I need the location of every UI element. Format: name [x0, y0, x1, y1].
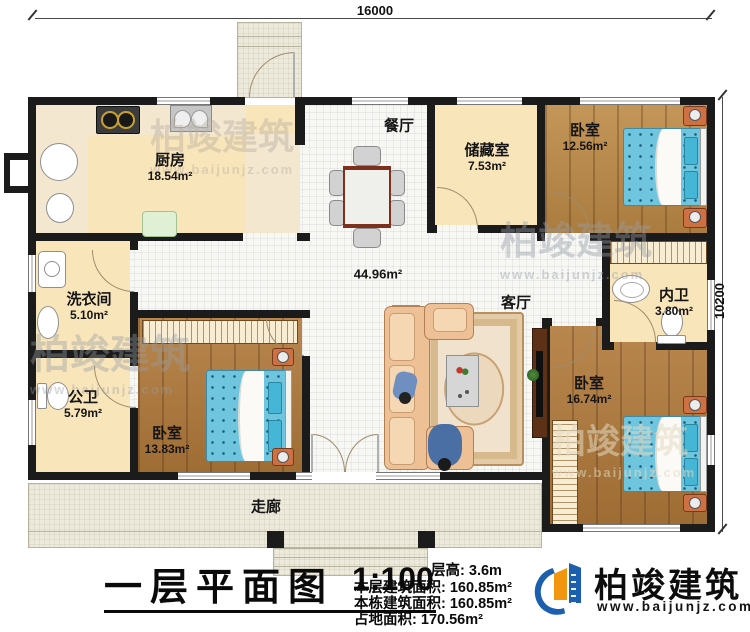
wall [297, 233, 310, 241]
armchair [424, 303, 474, 340]
nightstand [683, 494, 707, 512]
window [178, 472, 250, 480]
logo-icon [534, 559, 590, 619]
bed [623, 128, 707, 206]
wall [28, 350, 138, 358]
coffee-table [446, 355, 479, 407]
wardrobe [552, 420, 578, 528]
wall [130, 241, 138, 250]
wall [542, 472, 550, 532]
pillow [684, 171, 698, 199]
person-head [399, 392, 411, 404]
dining-chair [353, 146, 381, 166]
wall [707, 330, 715, 435]
plan-title: 一层平面图 [104, 556, 334, 611]
table-deco [465, 390, 469, 394]
table-deco [458, 394, 462, 398]
wall [210, 97, 245, 105]
nightstand [683, 208, 707, 228]
porch-step-line [238, 46, 301, 47]
sofa-cushion [389, 313, 415, 361]
wall [408, 97, 457, 105]
kitchen-counter-right [245, 134, 300, 233]
sink-basin [174, 110, 191, 128]
toilet-tank [657, 335, 686, 344]
lamp [689, 211, 701, 223]
wall [295, 97, 305, 145]
room-label-laundry: 洗衣间 5.10m² [66, 292, 111, 322]
stove [96, 106, 140, 134]
wall [522, 97, 580, 105]
dimension-line-top [35, 18, 712, 19]
pillow [684, 458, 698, 486]
nightstand [272, 448, 294, 466]
sink-basin [620, 282, 644, 298]
nightstand [272, 348, 294, 366]
room-label-kitchen: 厨房 18.54m² [148, 153, 193, 183]
wall [130, 408, 138, 472]
room-label-inner-bath: 内卫 3.80m² [655, 288, 693, 318]
window [296, 472, 312, 480]
flower-vase [454, 364, 470, 378]
wall [250, 472, 296, 480]
wall [302, 356, 310, 472]
pillow [268, 382, 282, 414]
wall [28, 233, 243, 241]
fridge [142, 211, 177, 237]
wall [590, 233, 707, 241]
window [707, 280, 715, 330]
bed [623, 416, 707, 492]
porch-column [418, 531, 435, 548]
room-label-storage: 储藏室 7.53m² [464, 143, 509, 173]
window [583, 524, 680, 532]
window [580, 97, 680, 105]
wall [602, 241, 610, 350]
wall [440, 472, 550, 480]
window [28, 255, 36, 292]
dining-table [343, 166, 391, 228]
room-label-dining: 餐厅 [384, 119, 414, 136]
wall [138, 310, 310, 318]
corridor-floor [28, 483, 542, 548]
corridor-edge-line [28, 531, 542, 532]
blanket [238, 371, 264, 461]
door-leaf [311, 434, 313, 472]
counter-round [46, 193, 74, 223]
logo-url: www.baijunjz.com [597, 599, 750, 614]
headboard [700, 128, 707, 206]
lamp [277, 451, 289, 463]
wall [28, 445, 36, 472]
tv-cabinet [532, 328, 548, 438]
window [707, 435, 715, 465]
porch-step-line [238, 36, 301, 37]
porch-column [267, 531, 284, 548]
blanket [655, 417, 681, 491]
kitchen-sink [170, 105, 212, 132]
wall [602, 342, 614, 350]
room-label-bedroom-tr: 卧室 12.56m² [563, 123, 608, 153]
washing-machine [38, 251, 66, 288]
sofa-cushion [389, 417, 415, 465]
room-label-living: 客厅 [501, 296, 531, 313]
pillow [684, 424, 698, 452]
wall [680, 97, 715, 105]
lamp [277, 351, 289, 363]
wall [28, 292, 36, 400]
sink-basin [191, 110, 208, 128]
lamp [689, 497, 701, 509]
lamp [689, 109, 701, 121]
blanket [655, 129, 681, 205]
plant [527, 369, 539, 381]
washer-door [44, 261, 60, 277]
room-label-corridor: 走廊 [251, 500, 281, 517]
stat-land-area: 占地面积: 170.56m² [354, 608, 483, 629]
wall [478, 225, 545, 233]
dimension-width-label: 16000 [340, 3, 410, 18]
room-label-bedroom-br: 卧室 16.74m² [567, 376, 612, 406]
wall [427, 225, 437, 233]
dining-chair [389, 200, 405, 226]
window [28, 400, 36, 445]
nightstand [683, 106, 707, 126]
lamp [689, 399, 701, 411]
room-label-hall-area: 44.96m² [354, 268, 402, 283]
laundry-sink [37, 306, 59, 339]
wall [28, 97, 157, 105]
dining-chair [389, 170, 405, 196]
nightstand [683, 396, 707, 414]
tv [536, 351, 543, 417]
wall [707, 465, 715, 532]
window [157, 97, 210, 105]
toilet-tank [37, 383, 47, 409]
wall [537, 105, 545, 241]
wardrobe [610, 241, 707, 264]
bathroom-sink [612, 275, 650, 303]
wall [596, 318, 610, 326]
room-label-bedroom-bl: 卧室 13.83m² [145, 426, 190, 456]
window [352, 97, 408, 105]
headboard [700, 416, 707, 492]
pillow [684, 137, 698, 165]
floor-plan: 16000 10200 [0, 0, 750, 632]
door-leaf [293, 52, 295, 97]
dining-chair [353, 228, 381, 248]
person-head [438, 458, 451, 471]
counter-round [40, 143, 78, 181]
room-label-public-bath: 公卫 5.79m² [64, 390, 102, 420]
sofa-cushion [433, 308, 467, 332]
kitchen-counter-top [36, 105, 246, 135]
window [457, 97, 522, 105]
wall [28, 472, 178, 480]
window [376, 472, 440, 480]
chimney-inner [10, 160, 28, 186]
door-leaf [377, 434, 379, 472]
wall [427, 105, 435, 233]
logo-building-blue [569, 563, 581, 603]
wall [707, 105, 715, 280]
burner [117, 111, 135, 129]
